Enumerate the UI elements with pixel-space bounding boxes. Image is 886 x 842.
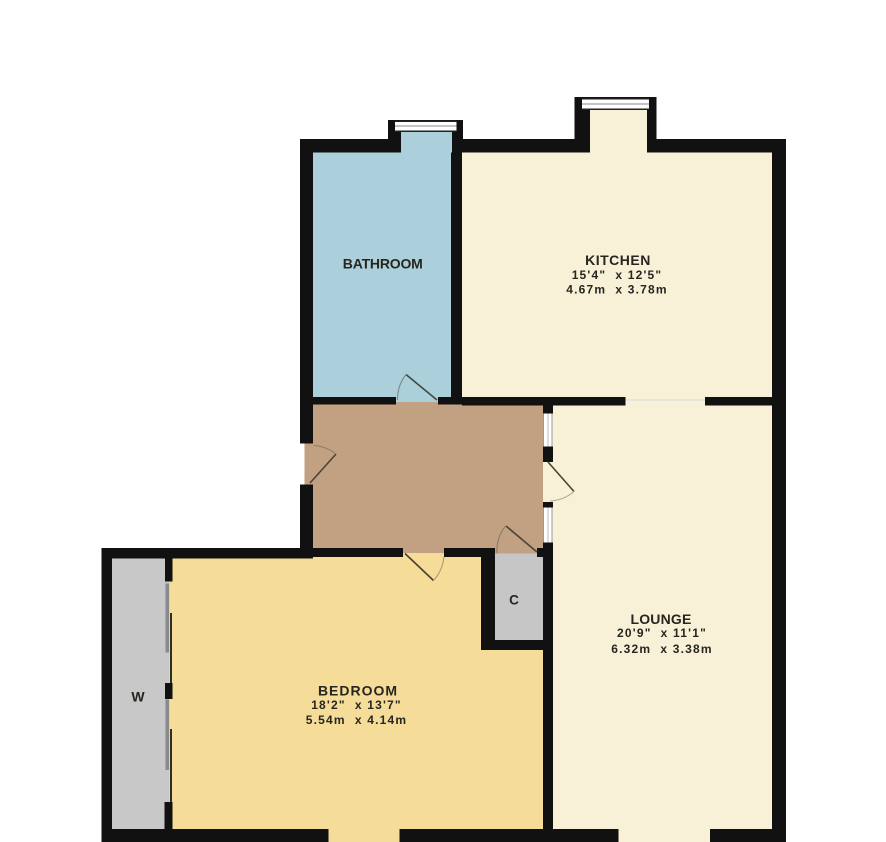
svg-text:6.32m x 3.38m: 6.32m x 3.38m (611, 642, 713, 656)
svg-text:5.54m x 4.14m: 5.54m x 4.14m (306, 713, 408, 727)
svg-text:15'4" x 12'5": 15'4" x 12'5" (572, 268, 663, 282)
svg-text:W: W (131, 688, 145, 704)
svg-text:C: C (509, 593, 519, 608)
svg-text:BATHROOM: BATHROOM (343, 256, 423, 272)
svg-text:4.67m x 3.78m: 4.67m x 3.78m (566, 282, 668, 296)
svg-text:LOUNGE: LOUNGE (630, 611, 691, 627)
svg-text:20'9" x 11'1": 20'9" x 11'1" (617, 626, 707, 640)
svg-text:BEDROOM: BEDROOM (318, 682, 398, 698)
svg-text:18'2" x 13'7": 18'2" x 13'7" (311, 698, 402, 712)
svg-text:KITCHEN: KITCHEN (585, 252, 651, 268)
